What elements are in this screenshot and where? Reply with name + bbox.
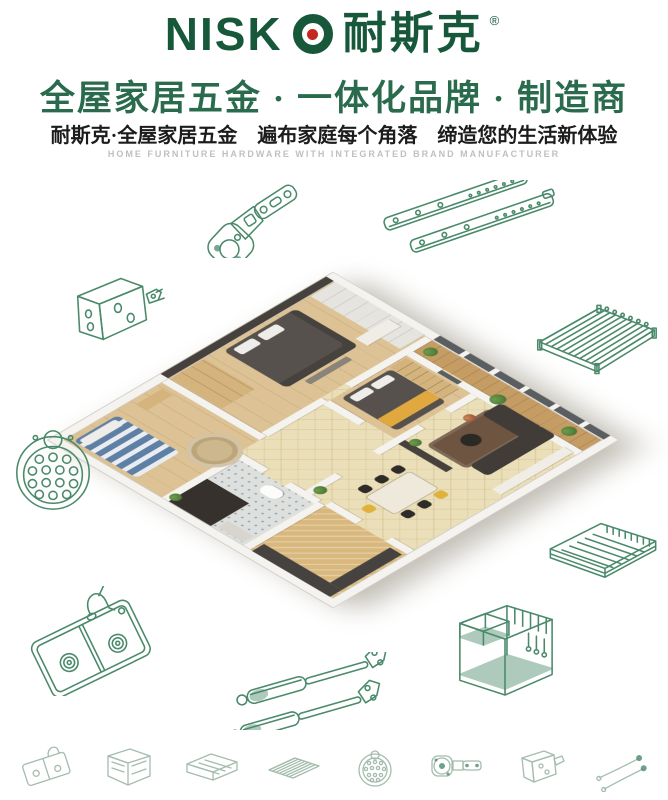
wire-basket-icon (540, 508, 666, 586)
wire-shelf-mini-drawing (263, 744, 323, 797)
hinge-icon (196, 184, 312, 258)
cabinet-organizer-mini-icon (98, 744, 158, 792)
english-tagline: HOME FURNITURE HARDWARE WITH INTEGRATED … (0, 149, 668, 159)
logo-chinese-text: 耐斯克 (343, 12, 484, 56)
brand-logo: NISK 耐斯克 ® (0, 12, 668, 56)
sink-icon (18, 586, 156, 696)
logo-red-dot (307, 29, 318, 40)
organizer-rack-drawing (452, 590, 558, 698)
logo-latin-text: NISK (165, 12, 283, 56)
gas-strut-mini-icon (592, 744, 652, 792)
registered-trademark-symbol: ® (490, 13, 500, 28)
wire-basket-mini-drawing (181, 744, 241, 797)
logo-o-ring-icon (293, 14, 333, 54)
drawer-slides-icon (380, 180, 562, 260)
cabinet-organizer-mini-drawing (98, 744, 158, 797)
concealed-cabinet-hinge-drawing (196, 184, 312, 258)
pull-out-basket-drawing (540, 508, 666, 586)
bracket-mini-icon (510, 744, 570, 792)
wire-shelf-rack-drawing (520, 292, 668, 384)
main-headline: 全屋家居五金 · 一体化品牌 · 制造商 (0, 70, 668, 121)
drawer-slides-drawing (380, 180, 562, 260)
hinge-mini-icon (427, 744, 487, 792)
strainer-mini-drawing (345, 744, 405, 797)
mounting-bracket-drawing (60, 266, 170, 350)
strainer-mini-icon (345, 744, 405, 792)
product-icon-strip (0, 744, 668, 797)
bracket-icon (60, 266, 170, 350)
gas-struts-drawing (226, 652, 414, 730)
sub-headline: 耐斯克·全屋家居五金 遍布家庭每个角落 缔造您的生活新体验 (0, 119, 668, 148)
kitchen-sink-drawing (18, 586, 156, 696)
organizer-rack-icon (452, 590, 558, 698)
wire-basket-mini-icon (181, 744, 241, 792)
sink-mini-icon (16, 744, 76, 792)
bracket-mini-drawing (510, 744, 570, 797)
strainer-icon (6, 424, 100, 514)
sink-strainer-drawing (6, 424, 100, 514)
hinge-mini-drawing (427, 744, 487, 797)
gas-strut-mini-drawing (592, 744, 652, 797)
poster: NISK 耐斯克 ® 全屋家居五金 · 一体化品牌 · 制造商 耐斯克·全屋家居… (0, 0, 668, 800)
wire-shelf-icon (520, 292, 668, 384)
gas-strut-icon (226, 652, 414, 730)
wire-shelf-mini-icon (263, 744, 323, 792)
sink-mini-drawing (16, 744, 76, 797)
